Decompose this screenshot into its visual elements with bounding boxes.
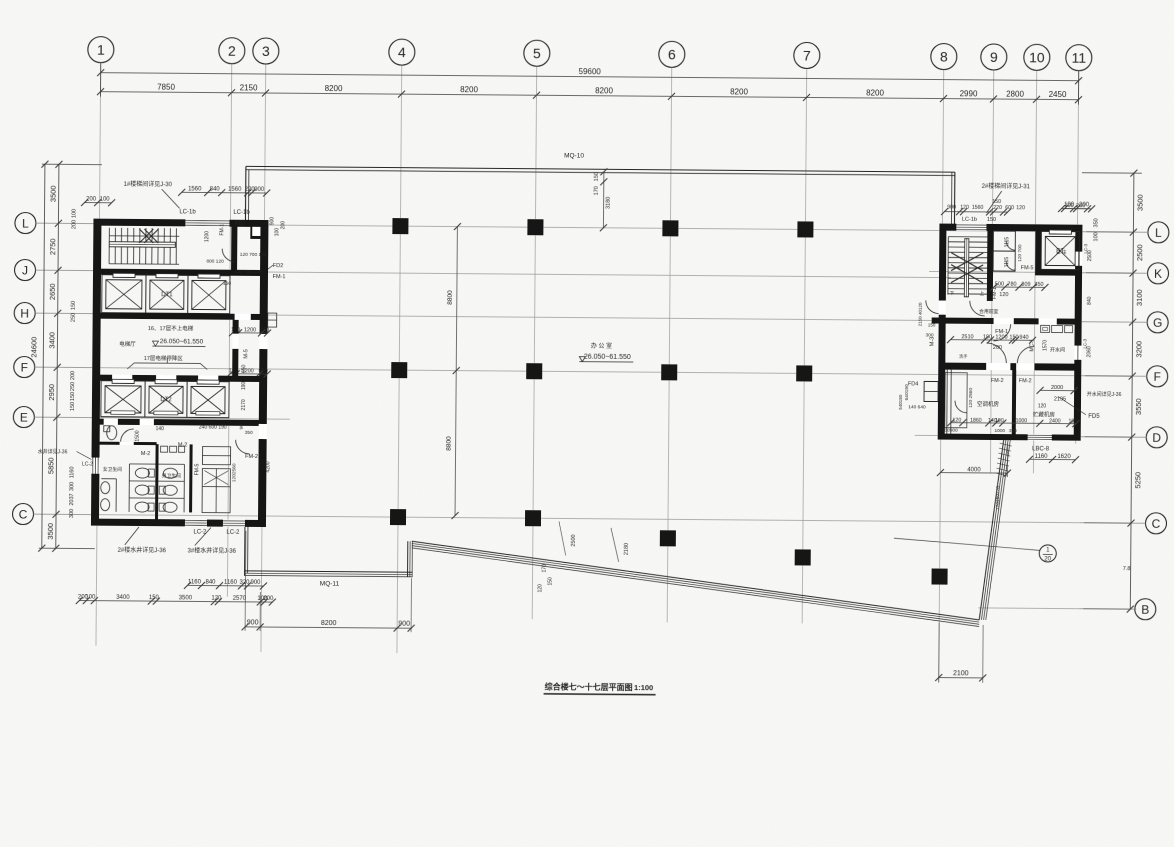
svg-text:3200: 3200 [1134, 341, 1143, 358]
svg-text:F: F [21, 360, 28, 374]
svg-text:办 公 室: 办 公 室 [591, 342, 612, 350]
svg-text:2150: 2150 [240, 83, 258, 92]
svg-text:开水间: 开水间 [1050, 346, 1065, 353]
svg-text:E: E [20, 410, 28, 424]
svg-text:8800: 8800 [446, 436, 453, 451]
svg-text:9: 9 [990, 49, 998, 65]
svg-text:1200: 1200 [995, 335, 1007, 341]
svg-text:1620: 1620 [1057, 454, 1071, 460]
svg-text:150: 150 [149, 595, 160, 601]
svg-text:8200: 8200 [321, 620, 337, 627]
svg-text:LBC-8: LBC-8 [1032, 446, 1050, 452]
svg-text:7.8: 7.8 [1123, 566, 1131, 572]
svg-text:M-5: M-5 [243, 349, 249, 359]
svg-text:120 2560: 120 2560 [968, 387, 974, 407]
svg-text:940: 940 [1019, 335, 1028, 341]
svg-text:900: 900 [254, 187, 265, 193]
svg-text:1560: 1560 [188, 186, 202, 192]
svg-text:MQ-11: MQ-11 [320, 580, 340, 587]
svg-text:120: 120 [1038, 403, 1047, 409]
svg-text:LC-1b: LC-1b [233, 210, 250, 216]
svg-text:150: 150 [71, 301, 77, 310]
svg-text:FM-1: FM-1 [219, 224, 225, 236]
svg-text:2000: 2000 [1051, 385, 1063, 391]
svg-text:100: 100 [1093, 232, 1099, 241]
svg-text:3500: 3500 [46, 523, 55, 540]
svg-text:11: 11 [1071, 50, 1086, 66]
svg-text:540150: 540150 [898, 394, 903, 410]
svg-text:1860: 1860 [970, 418, 982, 424]
svg-text:300: 300 [69, 482, 75, 491]
svg-text:贮藏机房: 贮藏机房 [1033, 410, 1056, 418]
svg-text:3500: 3500 [179, 595, 193, 601]
svg-text:2180: 2180 [624, 543, 630, 555]
svg-text:M-2: M-2 [141, 451, 151, 457]
svg-text:8200: 8200 [325, 84, 343, 93]
svg-text:H: H [20, 306, 29, 320]
svg-text:10: 10 [1029, 49, 1045, 65]
svg-text:5850: 5850 [46, 457, 55, 474]
svg-text:K: K [1154, 267, 1162, 281]
svg-text:8200: 8200 [866, 88, 884, 97]
svg-text:1560: 1560 [972, 205, 984, 211]
svg-text:3400: 3400 [47, 332, 56, 349]
svg-text:120: 120 [211, 596, 222, 602]
svg-text:120: 120 [960, 205, 969, 211]
svg-text:809: 809 [1021, 282, 1030, 288]
svg-text:4: 4 [398, 44, 406, 60]
svg-text:上: 上 [980, 290, 985, 296]
svg-text:900: 900 [398, 621, 410, 628]
svg-text:250: 250 [70, 382, 76, 391]
svg-text:200: 200 [263, 596, 274, 602]
svg-text:150: 150 [547, 577, 553, 586]
svg-text:F: F [1153, 370, 1160, 384]
svg-text:1202560: 1202560 [231, 463, 237, 482]
svg-text:100: 100 [1068, 418, 1077, 424]
svg-text:24600: 24600 [29, 337, 38, 358]
svg-text:3550: 3550 [1134, 398, 1143, 415]
svg-text:100900: 100900 [942, 428, 958, 434]
svg-text:1200: 1200 [204, 231, 210, 242]
svg-text:550: 550 [259, 368, 268, 374]
svg-text:1000: 1000 [1016, 418, 1028, 424]
svg-text:1: 1 [97, 42, 105, 58]
svg-text:综合楼七～十七层平面图: 综合楼七～十七层平面图 [545, 681, 633, 692]
svg-text:空调机房: 空调机房 [977, 400, 1000, 408]
svg-text:200: 200 [71, 220, 77, 229]
svg-text:2450: 2450 [1049, 90, 1067, 99]
svg-text:200: 200 [70, 371, 76, 380]
svg-text:8200: 8200 [730, 87, 748, 96]
svg-text:FM-2: FM-2 [991, 378, 1004, 384]
svg-text:1200: 1200 [244, 327, 256, 333]
svg-text:100: 100 [100, 197, 111, 203]
svg-text:150: 150 [223, 281, 231, 287]
svg-text:1115: 1115 [1004, 237, 1010, 248]
svg-text:120 700 100: 120 700 100 [235, 269, 262, 275]
svg-text:250: 250 [71, 313, 77, 322]
svg-text:300: 300 [69, 509, 75, 518]
svg-text:170: 170 [542, 564, 548, 573]
svg-text:4000: 4000 [967, 467, 981, 473]
svg-text:90: 90 [239, 424, 245, 430]
svg-text:J: J [22, 263, 28, 277]
svg-text:200: 200 [1076, 203, 1085, 209]
svg-text:150: 150 [260, 327, 269, 333]
svg-text:7: 7 [803, 47, 811, 63]
svg-text:MQ-10: MQ-10 [564, 152, 584, 159]
svg-text:洗手: 洗手 [959, 353, 967, 360]
svg-text:390: 390 [1009, 428, 1017, 434]
svg-text:240 600 190: 240 600 190 [199, 424, 227, 430]
svg-text:8800: 8800 [447, 290, 454, 305]
svg-text:LC-1b: LC-1b [179, 209, 196, 215]
svg-text:3: 3 [262, 43, 270, 59]
svg-text:140 640: 140 640 [908, 404, 926, 410]
svg-text:2500: 2500 [1135, 244, 1144, 261]
svg-text:200: 200 [86, 197, 97, 203]
svg-text:100: 100 [1064, 203, 1073, 209]
svg-text:8200: 8200 [595, 86, 613, 95]
svg-text:100: 100 [85, 595, 96, 601]
svg-text:150: 150 [70, 402, 76, 411]
svg-text:100: 100 [71, 209, 77, 218]
svg-text:150: 150 [594, 172, 600, 181]
svg-text:170150120: 170150120 [995, 486, 1001, 510]
svg-text:840: 840 [205, 580, 216, 586]
svg-text:1570: 1570 [1042, 340, 1048, 351]
svg-text:26.050~61.550: 26.050~61.550 [584, 354, 631, 361]
svg-text:220: 220 [993, 205, 1002, 211]
svg-text:150: 150 [987, 217, 996, 223]
svg-text:350: 350 [245, 430, 253, 436]
svg-text:开水间详见J-36: 开水间详见J-36 [1087, 391, 1122, 398]
svg-text:26.050~61.550: 26.050~61.550 [160, 338, 204, 345]
svg-text:1160: 1160 [224, 580, 238, 586]
svg-text:1000: 1000 [994, 428, 1005, 434]
svg-text:190: 190 [983, 334, 992, 340]
svg-text:900: 900 [947, 205, 956, 211]
svg-text:电梯厅: 电梯厅 [119, 340, 136, 348]
svg-text:LC-3: LC-3 [1083, 243, 1088, 253]
svg-text:350: 350 [1034, 282, 1043, 288]
svg-text:3180: 3180 [606, 197, 612, 209]
svg-text:8: 8 [940, 49, 948, 65]
svg-text:840: 840 [210, 187, 221, 193]
svg-text:2100: 2100 [953, 670, 969, 677]
svg-text:2500: 2500 [571, 534, 577, 546]
svg-text:150: 150 [992, 199, 1001, 205]
svg-text:900: 900 [247, 619, 259, 626]
svg-text:190: 190 [995, 418, 1004, 424]
svg-text:20: 20 [1044, 556, 1051, 562]
svg-text:150: 150 [1009, 335, 1018, 341]
svg-text:C: C [19, 507, 28, 521]
svg-text:水井详见J-36: 水井详见J-36 [38, 448, 68, 455]
svg-text:2400: 2400 [1049, 418, 1061, 424]
svg-text:LC-2: LC-2 [82, 462, 93, 468]
svg-text:120: 120 [952, 417, 961, 423]
svg-text:2510: 2510 [961, 334, 973, 340]
svg-text:600: 600 [1005, 205, 1014, 211]
svg-text:2570: 2570 [233, 596, 247, 602]
svg-text:LC-3: LC-3 [1082, 338, 1087, 348]
svg-text:190: 190 [241, 381, 247, 390]
svg-text:3400: 3400 [116, 595, 130, 601]
svg-text:2037: 2037 [69, 493, 75, 505]
svg-text:120: 120 [1016, 205, 1025, 211]
svg-text:D: D [1152, 431, 1161, 445]
svg-text:FM-2: FM-2 [1019, 378, 1032, 384]
svg-text:1115: 1115 [1004, 257, 1010, 268]
svg-text:FM-2: FM-2 [245, 454, 258, 460]
svg-text:C: C [1152, 517, 1161, 531]
svg-text:LC-1b: LC-1b [962, 217, 977, 223]
svg-text:900: 900 [250, 580, 261, 586]
svg-text:B: B [1141, 603, 1149, 617]
svg-text:650: 650 [241, 364, 247, 373]
svg-text:200: 200 [280, 221, 286, 230]
svg-text:840: 840 [1087, 296, 1093, 305]
svg-text:140: 140 [156, 426, 165, 432]
svg-text:1160: 1160 [1035, 454, 1049, 460]
svg-text:300: 300 [926, 332, 934, 338]
svg-text:FD5: FD5 [1088, 414, 1100, 420]
svg-text:2650: 2650 [48, 283, 57, 300]
svg-text:500: 500 [995, 282, 1004, 288]
svg-text:120 700: 120 700 [1017, 244, 1023, 262]
svg-text:2950: 2950 [47, 384, 56, 401]
svg-text:640190: 640190 [904, 384, 910, 400]
svg-text:120: 120 [537, 584, 543, 593]
svg-text:150: 150 [928, 322, 936, 327]
svg-text:170: 170 [594, 186, 600, 195]
svg-text:6: 6 [668, 46, 676, 62]
svg-text:FM-1: FM-1 [273, 274, 286, 280]
svg-text:LC-2: LC-2 [193, 529, 207, 535]
svg-text:DT2: DT2 [160, 397, 172, 403]
svg-text:900: 900 [269, 217, 275, 226]
svg-text:2990: 2990 [960, 89, 978, 98]
svg-text:L: L [22, 216, 29, 230]
svg-text:5: 5 [533, 45, 541, 61]
svg-text:FD1: FD1 [235, 221, 245, 227]
svg-text:FM-5: FM-5 [194, 463, 200, 475]
svg-text:150: 150 [70, 392, 76, 401]
svg-text:780: 780 [1007, 282, 1016, 288]
svg-text:FD2: FD2 [273, 263, 283, 269]
svg-text:2: 2 [228, 43, 236, 59]
svg-text:1500: 1500 [135, 430, 141, 441]
svg-text:4200: 4200 [265, 461, 271, 472]
svg-text:59600: 59600 [579, 67, 602, 76]
svg-text:120 700 100: 120 700 100 [240, 252, 267, 258]
svg-text:5250: 5250 [1133, 472, 1142, 489]
svg-text:8200: 8200 [460, 85, 478, 94]
svg-text:2800: 2800 [1006, 90, 1024, 99]
svg-text:1160: 1160 [69, 467, 75, 479]
svg-text:1560: 1560 [228, 187, 242, 193]
svg-text:1160: 1160 [188, 579, 202, 585]
svg-text:3500: 3500 [1136, 194, 1145, 211]
svg-text:800 120: 800 120 [206, 259, 224, 265]
svg-text:7850: 7850 [157, 83, 175, 92]
svg-text:3500: 3500 [49, 185, 58, 202]
svg-text:M-2: M-2 [178, 442, 188, 448]
svg-text:FM-5: FM-5 [1021, 265, 1034, 271]
svg-text:G: G [1153, 316, 1162, 330]
svg-text:320: 320 [239, 580, 250, 586]
svg-text:LC-2: LC-2 [226, 530, 240, 536]
svg-text:350: 350 [1093, 218, 1099, 227]
svg-text:2750: 2750 [48, 238, 57, 255]
svg-text:3100: 3100 [1135, 289, 1144, 306]
svg-text:2170: 2170 [241, 399, 247, 410]
svg-text:2150 40120: 2150 40120 [918, 302, 923, 326]
svg-text:DT1: DT1 [161, 292, 173, 298]
svg-text:1:100: 1:100 [634, 683, 653, 692]
svg-text:L: L [1155, 226, 1162, 240]
svg-text:120: 120 [999, 292, 1008, 298]
